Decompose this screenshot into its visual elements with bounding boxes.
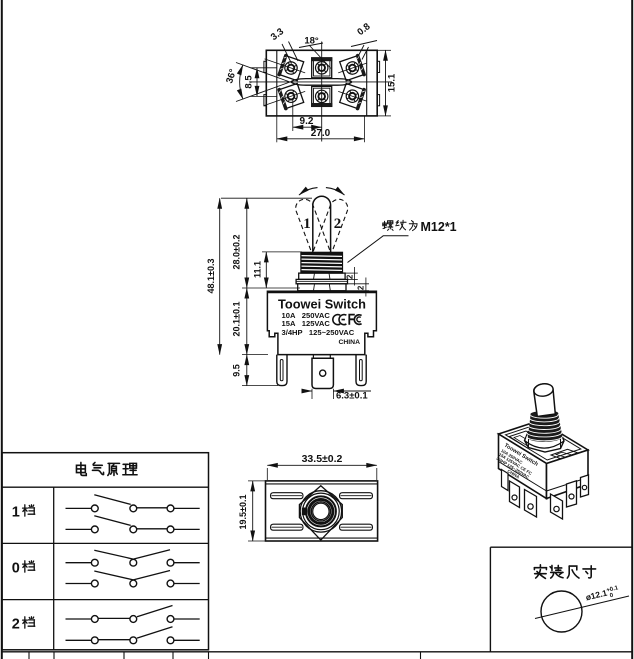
svg-text:CHINA: CHINA: [338, 339, 360, 346]
svg-text:2: 2: [345, 274, 354, 279]
svg-text:2: 2: [334, 216, 342, 232]
svg-text:20.1±0.1: 20.1±0.1: [232, 302, 242, 337]
svg-text:9.5: 9.5: [232, 364, 242, 377]
svg-text:Toowei Switch: Toowei Switch: [278, 297, 366, 312]
svg-text:1: 1: [12, 505, 20, 521]
svg-text:15A 125VAC: 15A 125VAC: [282, 319, 331, 328]
svg-text:2: 2: [12, 617, 20, 633]
svg-text:11.1: 11.1: [253, 261, 263, 278]
svg-text:33.5±0.2: 33.5±0.2: [302, 453, 343, 465]
svg-text:0: 0: [12, 561, 20, 577]
svg-text:M12*1: M12*1: [421, 220, 457, 234]
svg-text:1: 1: [303, 216, 311, 232]
svg-text:8.5: 8.5: [244, 75, 255, 89]
svg-text:15.1: 15.1: [387, 73, 398, 92]
svg-text:28.0±0.2: 28.0±0.2: [232, 235, 242, 270]
svg-text:48.1±0.3: 48.1±0.3: [206, 259, 216, 294]
svg-text:3/4HP 125~250VAC: 3/4HP 125~250VAC: [282, 328, 355, 337]
svg-text:19.5±0.1: 19.5±0.1: [238, 495, 248, 530]
svg-text:6.3±0.1: 6.3±0.1: [336, 391, 368, 402]
svg-text:27.0: 27.0: [311, 128, 331, 139]
svg-text:2: 2: [357, 285, 366, 290]
svg-text:9.2: 9.2: [300, 116, 314, 127]
